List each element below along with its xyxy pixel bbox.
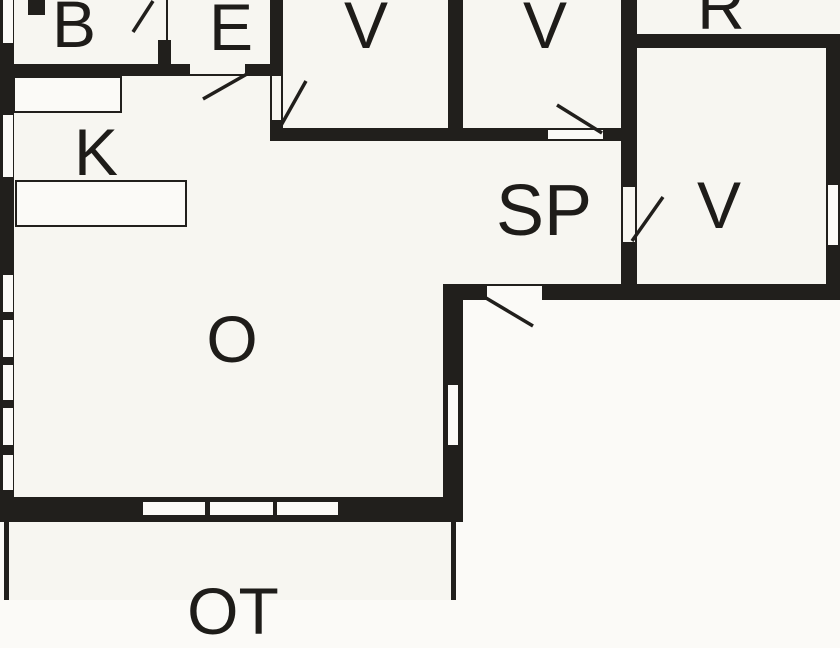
room-label-v2: V (523, 0, 567, 58)
door-threshold (487, 284, 542, 286)
wall-e-v-divider-upper (270, 0, 283, 70)
window (143, 502, 205, 515)
window (3, 455, 13, 490)
window (3, 115, 13, 177)
window (210, 502, 273, 515)
room-label-v1: V (344, 0, 388, 58)
door-opening (548, 130, 603, 139)
floor-plan: B E V V R K SP V O OT (0, 0, 840, 600)
wall-v-v-divider (448, 0, 463, 141)
door-threshold (190, 74, 245, 76)
wall-right-exterior (826, 48, 840, 300)
window (3, 275, 13, 312)
window (277, 502, 338, 515)
room-label-e: E (209, 0, 253, 60)
window (3, 365, 13, 400)
room-label-k: K (74, 119, 118, 185)
wall-terrace-left (4, 522, 9, 600)
door-jamb (621, 187, 623, 242)
window (448, 385, 458, 445)
wall-top-stub (28, 0, 45, 15)
window (3, 320, 13, 357)
room-label-sp: SP (496, 175, 592, 247)
window (3, 408, 13, 445)
room-label-o: O (206, 306, 257, 372)
door-jamb (281, 70, 283, 120)
wall-hall-v3-upper (621, 0, 637, 187)
door-swing-icon (486, 298, 533, 326)
door-jamb (166, 0, 168, 40)
room-label-ot: OT (187, 578, 279, 644)
room-label-b: B (52, 0, 96, 57)
door-jamb (270, 70, 272, 120)
window (3, 0, 13, 43)
wall-hall-top-left (13, 64, 190, 76)
room-label-r: R (697, 0, 745, 39)
wall-terrace-right (451, 522, 456, 600)
room-label-v3: V (697, 172, 741, 238)
door-opening (487, 286, 542, 300)
counter (13, 76, 122, 113)
window (828, 185, 838, 245)
door-jamb (635, 187, 637, 242)
